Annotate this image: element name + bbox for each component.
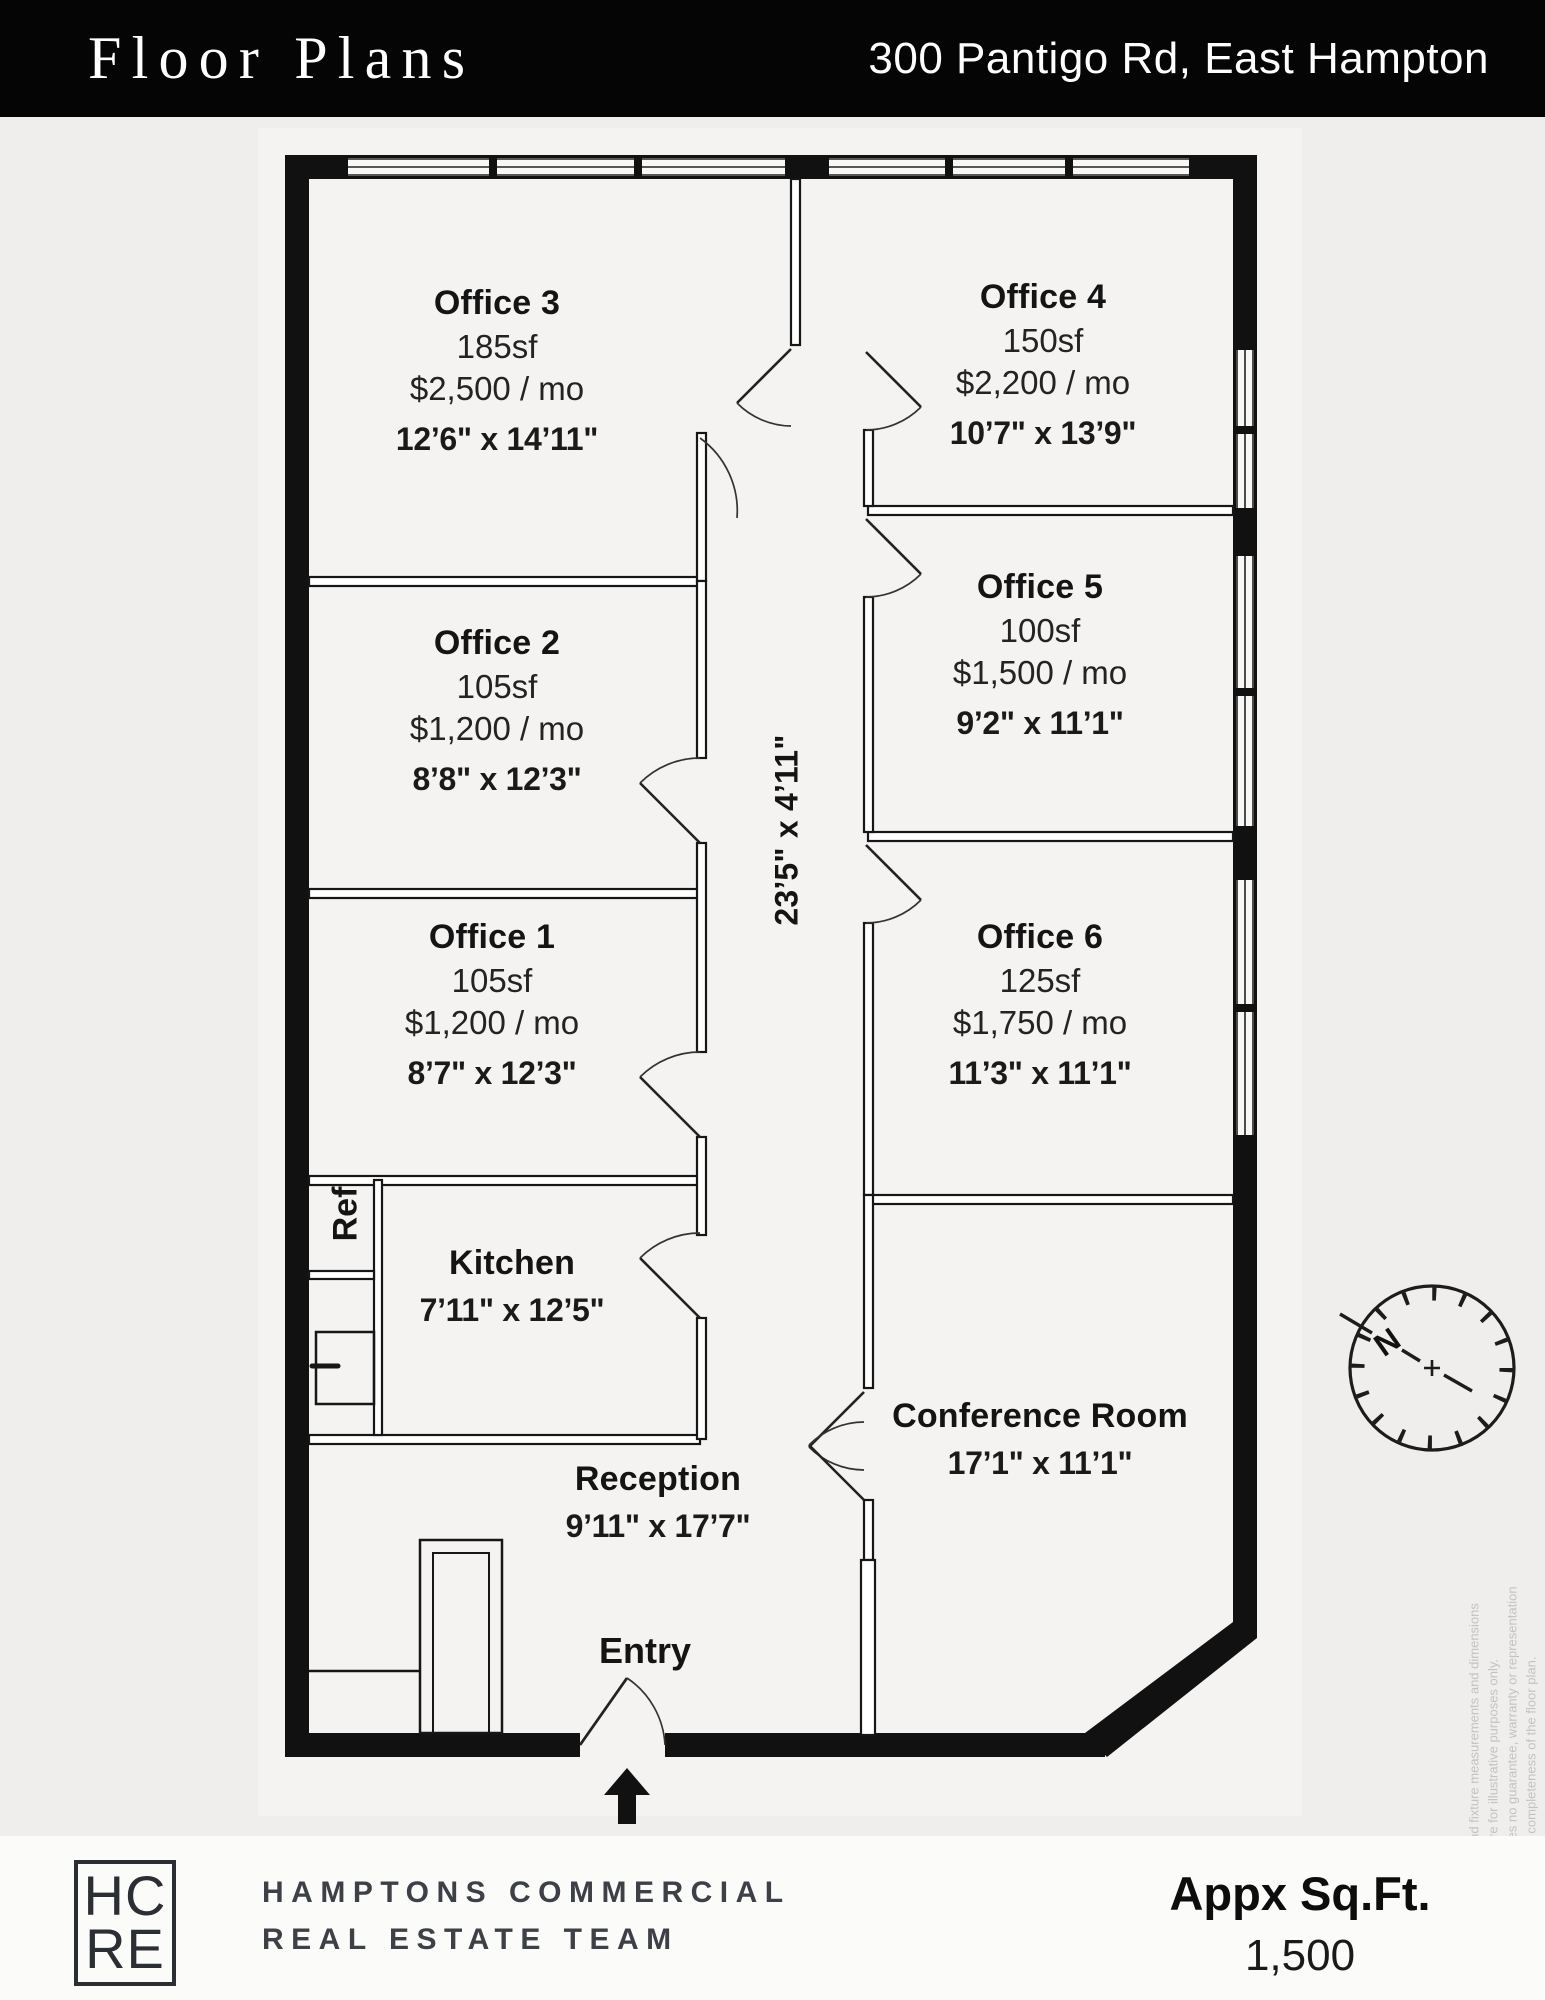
room-name: Office 4 bbox=[950, 276, 1137, 320]
entry-label: Entry bbox=[599, 1630, 691, 1672]
room-name: Office 5 bbox=[953, 566, 1127, 610]
sqft-label: Appx Sq.Ft. bbox=[1169, 1866, 1430, 1921]
room-label-office-3: Office 3 185sf $2,500 / mo 12’6" x 14’11… bbox=[396, 282, 598, 460]
room-dimensions: 17’1" x 11’1" bbox=[890, 1443, 1190, 1484]
room-area: 150sf bbox=[950, 320, 1137, 362]
room-label-office-2: Office 2 105sf $1,200 / mo 8’8" x 12’3" bbox=[410, 622, 584, 800]
refrigerator-label: Ref bbox=[327, 1187, 366, 1242]
room-name: Kitchen bbox=[420, 1242, 605, 1286]
footer-bar: HC RE HAMPTONS COMMERCIAL REAL ESTATE TE… bbox=[0, 1836, 1545, 2000]
room-label-office-4: Office 4 150sf $2,200 / mo 10’7" x 13’9" bbox=[950, 276, 1137, 454]
team-name-line-1: HAMPTONS COMMERCIAL bbox=[262, 1870, 791, 1917]
room-area: 185sf bbox=[396, 326, 598, 368]
right-windows bbox=[1236, 350, 1254, 1135]
room-price: $2,500 / mo bbox=[396, 368, 598, 410]
room-label-office-1: Office 1 105sf $1,200 / mo 8’7" x 12’3" bbox=[405, 916, 579, 1094]
sink-icon bbox=[312, 1332, 374, 1404]
room-dimensions: 11’3" x 11’1" bbox=[948, 1053, 1131, 1094]
room-label-conference: Conference Room 17’1" x 11’1" bbox=[890, 1395, 1190, 1483]
top-windows bbox=[348, 158, 1189, 176]
room-label-kitchen: Kitchen 7’11" x 12’5" bbox=[420, 1242, 605, 1330]
reception-closet bbox=[309, 1540, 502, 1733]
room-label-office-5: Office 5 100sf $1,500 / mo 9’2" x 11’1" bbox=[953, 566, 1127, 744]
room-dimensions: 12’6" x 14’11" bbox=[396, 419, 598, 460]
hallway-dimensions: 23’5" x 4’11" bbox=[769, 734, 806, 925]
room-price: $1,200 / mo bbox=[410, 708, 584, 750]
room-dimensions: 8’8" x 12’3" bbox=[410, 759, 584, 800]
room-area: 100sf bbox=[953, 610, 1127, 652]
room-price: $1,750 / mo bbox=[948, 1002, 1131, 1044]
room-name: Office 3 bbox=[396, 282, 598, 326]
room-price: $1,500 / mo bbox=[953, 652, 1127, 694]
room-dimensions: 7’11" x 12’5" bbox=[420, 1290, 605, 1331]
room-price: $2,200 / mo bbox=[950, 362, 1137, 404]
room-dimensions: 9’2" x 11’1" bbox=[953, 703, 1127, 744]
team-name-line-2: REAL ESTATE TEAM bbox=[262, 1917, 791, 1964]
room-name: Reception bbox=[566, 1458, 751, 1502]
room-area: 125sf bbox=[948, 960, 1131, 1002]
team-name: HAMPTONS COMMERCIAL REAL ESTATE TEAM bbox=[262, 1870, 791, 1963]
hcre-logo: HC RE bbox=[74, 1860, 176, 1986]
room-name: Office 6 bbox=[948, 916, 1131, 960]
room-dimensions: 10’7" x 13’9" bbox=[950, 413, 1137, 454]
compass-north-label: N bbox=[1367, 1321, 1407, 1364]
chamfer-wall bbox=[1085, 1622, 1257, 1757]
logo-line-2: RE bbox=[85, 1923, 165, 1976]
room-dimensions: 9’11" x 17’7" bbox=[566, 1506, 751, 1547]
room-label-office-6: Office 6 125sf $1,750 / mo 11’3" x 11’1" bbox=[948, 916, 1131, 1094]
room-name: Office 1 bbox=[405, 916, 579, 960]
logo-line-1: HC bbox=[84, 1870, 167, 1923]
sqft-value: 1,500 bbox=[1245, 1931, 1355, 1981]
floor-plan-svg: N bbox=[0, 0, 1545, 2000]
room-name: Conference Room bbox=[890, 1395, 1190, 1439]
room-dimensions: 8’7" x 12’3" bbox=[405, 1053, 579, 1094]
room-price: $1,200 / mo bbox=[405, 1002, 579, 1044]
entry-arrow-icon bbox=[604, 1768, 650, 1824]
room-area: 105sf bbox=[405, 960, 579, 1002]
room-area: 105sf bbox=[410, 666, 584, 708]
room-label-reception: Reception 9’11" x 17’7" bbox=[566, 1458, 751, 1546]
room-name: Office 2 bbox=[410, 622, 584, 666]
